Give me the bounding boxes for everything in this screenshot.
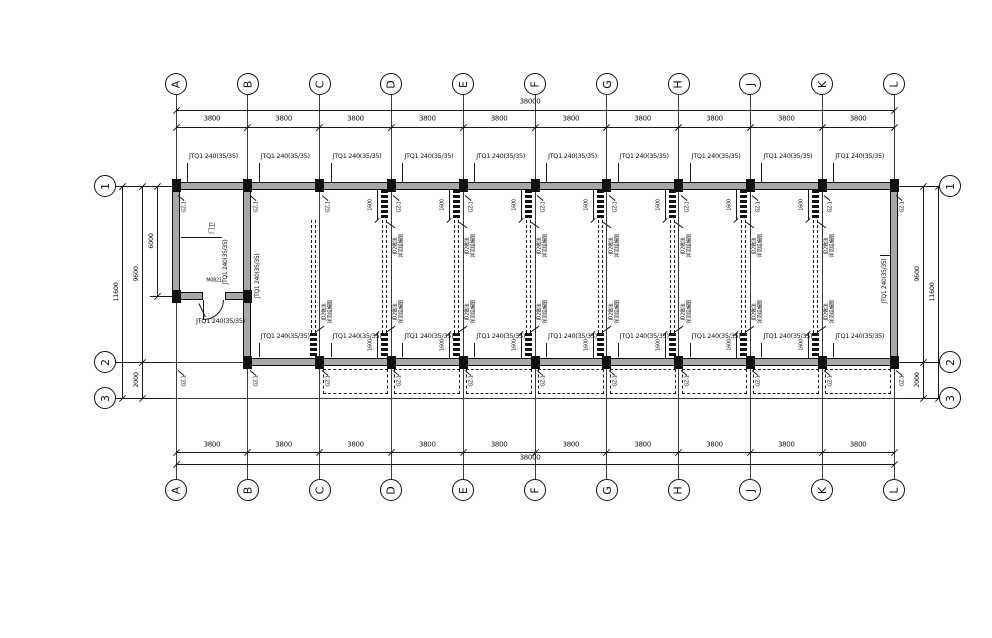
wall-label-top-6: JTQ1 240(35/35)	[620, 153, 669, 160]
bubble-label: C	[313, 80, 326, 88]
grid-line-col-D	[391, 95, 392, 479]
column-B1	[243, 179, 252, 192]
grid-line-col-J	[750, 95, 751, 479]
dim-ext-left-1	[150, 296, 172, 297]
duct-label-2: 详见结施图	[687, 300, 692, 324]
duct-dashed-line	[454, 220, 455, 333]
wall-label-L: JTQ1 240(35/35)	[882, 259, 888, 304]
canopy-outline-FG	[538, 369, 604, 394]
dim-line-top-overall	[176, 110, 894, 111]
column-tag-leader	[537, 195, 544, 201]
bubble-label: F	[528, 81, 541, 87]
dim-ext-right-1	[898, 362, 939, 363]
dim-text-bay-bottom-1: 3800	[275, 442, 292, 449]
wall-right-L	[890, 182, 898, 366]
column-tag: GZ-1	[685, 376, 690, 387]
wall-label-top-3: JTQ1 240(35/35)	[404, 153, 453, 160]
wall-label-top-5: JTQ1 240(35/35)	[548, 153, 597, 160]
column-tag: GZ-1	[542, 376, 547, 387]
wall-label-A: JTQ1 240(35/35)	[223, 240, 229, 285]
dim-line-1600-top	[449, 190, 450, 220]
grid-bubble-top-J: J	[739, 73, 761, 95]
grid-bubble-bottom-F: F	[524, 479, 546, 501]
dim-text-bay-top-5: 3800	[563, 116, 580, 123]
duct-label-2: 详见结施图	[472, 234, 477, 258]
column-tag-leader	[393, 195, 400, 201]
dim-text-1600-bottom: 1600	[584, 339, 589, 351]
column-J1	[746, 179, 755, 192]
wall-label-leader	[618, 163, 619, 182]
column-tag: GZ-1	[183, 376, 188, 387]
wall-label-bottom-5: JTQ1 240(35/35)	[548, 333, 597, 340]
grid-bubble-top-D: D	[380, 73, 402, 95]
duct-band	[310, 333, 317, 358]
dim-text-bay-bottom-6: 3800	[634, 442, 651, 449]
dim-text-1600-top: 1600	[513, 199, 518, 211]
grid-bubble-top-C: C	[309, 73, 331, 95]
grid-bubble-right-1: 1	[939, 175, 961, 197]
dim-text-1600-bottom: 1600	[369, 339, 374, 351]
duct-band	[669, 333, 676, 358]
dim-line-bottom-overall	[176, 464, 894, 465]
column-room-A	[172, 290, 181, 303]
column-D1	[387, 179, 396, 192]
duct-dashed-line	[311, 220, 312, 333]
duct-label-2: 详见结施图	[328, 300, 333, 324]
column-tag: GZ-1	[542, 202, 547, 213]
wall-label-top-2: JTQ1 240(35/35)	[333, 153, 382, 160]
duct-band	[740, 190, 747, 220]
wall-label-leader	[259, 343, 260, 357]
column-J2	[746, 356, 755, 369]
dim-text-9600-left: 9600	[133, 266, 140, 281]
bubble-label: K	[816, 80, 829, 87]
grid-bubble-top-H: H	[668, 73, 690, 95]
wall-label-leader	[402, 343, 403, 357]
wall-label-leader	[474, 163, 475, 182]
wall-label-leader	[402, 163, 403, 182]
wall-label-bottom-7: JTQ1 240(35/35)	[692, 333, 741, 340]
dim-tick	[806, 218, 811, 223]
wall-label-bottom-2: JTQ1 240(35/35)	[333, 333, 382, 340]
wall-label-bottom-9: JTQ1 240(35/35)	[835, 333, 884, 340]
wall-label-top-0: JTQ1 240(35/35)	[189, 153, 238, 160]
wall-label-B: JTQ1 240(35/35)	[255, 254, 261, 299]
column-tag: GZ-1	[613, 376, 618, 387]
dim-text-bay-bottom-5: 3800	[563, 442, 580, 449]
column-tag-leader	[321, 195, 328, 201]
wall-label-leader	[546, 163, 547, 182]
duct-label-2: 详见结施图	[615, 300, 620, 324]
canopy-outline-EF	[466, 369, 532, 394]
column-tag-leader	[752, 195, 759, 201]
bubble-label: G	[600, 486, 613, 495]
column-H1	[674, 179, 683, 192]
column-E2	[459, 356, 468, 369]
dim-text-1600-top: 1600	[584, 199, 589, 211]
duct-label-2: 详见结施图	[400, 234, 405, 258]
bubble-label: 3	[99, 395, 112, 402]
dim-text-1600-top: 1600	[728, 199, 733, 211]
dim-text-2000-right: 2000	[914, 372, 921, 387]
dim-text-1600-bottom: 1600	[656, 339, 661, 351]
duct-label-2: 详见结施图	[400, 300, 405, 324]
duct-label-2: 详见结施图	[687, 234, 692, 258]
dim-text-total-height-left: 11600	[113, 282, 120, 301]
dim-line-1600-top	[593, 190, 594, 220]
grid-bubble-bottom-B: B	[237, 479, 259, 501]
wall-label-leader	[618, 343, 619, 357]
dim-text-bay-bottom-3: 3800	[419, 442, 436, 449]
dim-text-bay-top-3: 3800	[419, 116, 436, 123]
column-G1	[602, 179, 611, 192]
bubble-label: 1	[944, 183, 957, 190]
dim-text-1600-bottom: 1600	[441, 339, 446, 351]
bubble-label: F	[528, 487, 541, 493]
wall-label-top-8: JTQ1 240(35/35)	[763, 153, 812, 160]
bubble-label: H	[672, 486, 685, 494]
duct-label-2: 详见结施图	[615, 234, 620, 258]
duct-dashed-line	[745, 220, 746, 333]
dim-text-1600-bottom: 1600	[800, 339, 805, 351]
duct-dashed-line	[813, 220, 814, 333]
wall-label-top-1: JTQ1 240(35/35)	[261, 153, 310, 160]
bubble-label: D	[385, 486, 398, 494]
duct-dashed-line	[458, 220, 459, 333]
room-label: 门卫	[210, 222, 216, 233]
canopy-outline-GH	[610, 369, 676, 394]
grid-bubble-top-A: A	[165, 73, 187, 95]
duct-label-1: JD2做法	[681, 237, 686, 254]
grid-bubble-top-B: B	[237, 73, 259, 95]
column-L1	[890, 179, 899, 192]
grid-bubble-bottom-G: G	[596, 479, 618, 501]
column-C2	[315, 356, 324, 369]
bubble-label: G	[600, 80, 613, 89]
column-tag-leader	[465, 195, 472, 201]
dim-text-bay-top-9: 3800	[850, 116, 867, 123]
duct-label-2: 详见结施图	[831, 300, 836, 324]
column-tag: GZ-1	[254, 202, 259, 213]
wall-label-leader	[546, 343, 547, 357]
wall-label-leader	[833, 343, 834, 357]
bubble-label: H	[672, 80, 685, 88]
column-tag: GZ-1	[829, 376, 834, 387]
wall-label-leader	[690, 343, 691, 357]
grid-line-col-K	[822, 95, 823, 479]
column-A1	[172, 179, 181, 192]
floor-plan-drawing: 3800380038003800380038003800380038003800…	[0, 0, 992, 638]
grid-bubble-bottom-E: E	[452, 479, 474, 501]
duct-dashed-line	[386, 220, 387, 333]
grid-bubble-bottom-L: L	[883, 479, 905, 501]
column-B2	[243, 356, 252, 369]
bubble-label: L	[887, 81, 900, 87]
duct-band	[597, 190, 604, 220]
bubble-label: 2	[99, 359, 112, 366]
grid-bubble-left-2: 2	[94, 351, 116, 373]
bubble-label: A	[170, 80, 183, 88]
column-K1	[818, 179, 827, 192]
grid-line-col-H	[678, 95, 679, 479]
column-G2	[602, 356, 611, 369]
grid-bubble-bottom-K: K	[811, 479, 833, 501]
dim-ext-right-0	[898, 186, 939, 187]
wall-label-bottom-1: JTQ1 240(35/35)	[261, 333, 310, 340]
grid-bubble-bottom-A: A	[165, 479, 187, 501]
duct-dashed-line	[741, 220, 742, 333]
grid-bubble-top-F: F	[524, 73, 546, 95]
bubble-label: B	[241, 486, 254, 494]
grid-bubble-left-1: 1	[94, 175, 116, 197]
duct-band	[381, 190, 388, 220]
grid-line-col-C	[319, 95, 320, 479]
duct-label-2: 详见结施图	[759, 300, 764, 324]
dim-tick	[375, 218, 380, 223]
dim-tick	[662, 218, 667, 223]
duct-label-2: 详见结施图	[759, 234, 764, 258]
dim-text-bay-top-7: 3800	[706, 116, 723, 123]
dim-line-left-total	[122, 186, 123, 398]
dim-text-bay-bottom-8: 3800	[778, 442, 795, 449]
wall-label-leader	[181, 237, 222, 238]
duct-dashed-line	[670, 220, 671, 333]
canopy-outline-HJ	[682, 369, 748, 394]
column-tag: GZ-1	[613, 202, 618, 213]
dim-text-1600-bottom: 1600	[728, 339, 733, 351]
column-tag: GZ-1	[829, 202, 834, 213]
dim-text-total-top: 38000	[520, 99, 541, 106]
dim-tick	[519, 218, 524, 223]
duct-dashed-line	[817, 220, 818, 333]
grid-line-col-F	[535, 95, 536, 479]
grid-bubble-right-2: 2	[939, 351, 961, 373]
dim-line-left-chain	[142, 186, 143, 398]
duct-dashed-line	[674, 220, 675, 333]
dim-line-1600-top	[736, 190, 737, 220]
column-tag-leader	[680, 195, 687, 201]
wall-label-top-4: JTQ1 240(35/35)	[476, 153, 525, 160]
duct-band	[453, 333, 460, 358]
canopy-outline-JK	[753, 369, 819, 394]
column-tag: GZ-1	[685, 202, 690, 213]
wall-label-leader	[474, 343, 475, 357]
grid-bubble-left-3: 3	[94, 387, 116, 409]
column-F1	[531, 179, 540, 192]
grid-bubble-right-3: 3	[939, 387, 961, 409]
column-tag: GZ-1	[398, 376, 403, 387]
dim-text-bay-top-1: 3800	[275, 116, 292, 123]
bubble-label: J	[744, 82, 757, 85]
column-tag: GZ-1	[470, 376, 475, 387]
bubble-label: E	[457, 487, 470, 494]
dim-text-1600-top: 1600	[656, 199, 661, 211]
duct-band	[453, 190, 460, 220]
dim-line-1600-top	[521, 190, 522, 220]
wall-label-room-bottom: JTQ1 240(35/35)	[196, 318, 245, 325]
bubble-label: 2	[944, 359, 957, 366]
duct-band	[812, 190, 819, 220]
duct-band	[812, 333, 819, 358]
column-H2	[674, 356, 683, 369]
wall-label-leader	[761, 163, 762, 182]
grid-bubble-top-L: L	[883, 73, 905, 95]
grid-bubble-top-K: K	[811, 73, 833, 95]
dim-text-bay-bottom-4: 3800	[491, 442, 508, 449]
bubble-label: E	[457, 81, 470, 88]
bubble-label: 3	[944, 395, 957, 402]
grid-bubble-top-E: E	[452, 73, 474, 95]
dim-text-bay-top-2: 3800	[347, 116, 364, 123]
dim-text-bay-bottom-0: 3800	[204, 442, 221, 449]
duct-band	[525, 190, 532, 220]
duct-dashed-line	[315, 220, 316, 333]
wall-label-bottom-3: JTQ1 240(35/35)	[404, 333, 453, 340]
column-tag-leader	[608, 195, 615, 201]
dim-text-bay-top-6: 3800	[634, 116, 651, 123]
column-E1	[459, 179, 468, 192]
column-tag: GZ-1	[183, 202, 188, 213]
duct-band	[740, 333, 747, 358]
wall-left-A	[172, 182, 180, 300]
dim-tick	[734, 218, 739, 223]
bubble-label: K	[816, 486, 829, 493]
wall-label-leader	[761, 343, 762, 357]
wall-label-leader	[833, 163, 834, 182]
column-tag: GZ-1	[326, 202, 331, 213]
canopy-outline-KL	[825, 369, 891, 394]
duct-label-2: 详见结施图	[544, 300, 549, 324]
column-tag: GZ-1	[470, 202, 475, 213]
wall-label-top-9: JTQ1 240(35/35)	[835, 153, 884, 160]
dim-text-bay-top-4: 3800	[491, 116, 508, 123]
dim-ext-right-2	[898, 398, 939, 399]
wall-label-bottom-6: JTQ1 240(35/35)	[620, 333, 669, 340]
dim-line-left-room	[157, 186, 158, 296]
wall-label-leader	[880, 255, 890, 256]
bubble-label: J	[744, 488, 757, 491]
dim-text-1600-bottom: 1600	[513, 339, 518, 351]
duct-dashed-line	[382, 220, 383, 333]
dim-text-bay-bottom-7: 3800	[706, 442, 723, 449]
grid-bubble-bottom-D: D	[380, 479, 402, 501]
dim-text-1600-top: 1600	[441, 199, 446, 211]
wall-label-leader	[331, 343, 332, 357]
wall-label-top-7: JTQ1 240(35/35)	[692, 153, 741, 160]
duct-dashed-line	[526, 220, 527, 333]
grid-line-col-G	[606, 95, 607, 479]
duct-band	[525, 333, 532, 358]
wall-label-bottom-8: JTQ1 240(35/35)	[763, 333, 812, 340]
duct-band	[669, 190, 676, 220]
dim-tick	[447, 218, 452, 223]
duct-label-1: JD2做法	[681, 303, 686, 320]
duct-dashed-line	[530, 220, 531, 333]
dim-text-1600-top: 1600	[800, 199, 805, 211]
bubble-label: B	[241, 80, 254, 88]
dim-text-bay-bottom-2: 3800	[347, 442, 364, 449]
column-tag: GZ-1	[901, 376, 906, 387]
dim-line-1600-top	[377, 190, 378, 220]
column-tag-leader	[824, 195, 831, 201]
grid-bubble-top-G: G	[596, 73, 618, 95]
dim-text-9600-right: 9600	[914, 266, 921, 281]
column-tag: GZ-1	[398, 202, 403, 213]
bubble-label: 1	[99, 183, 112, 190]
wall-B	[243, 182, 251, 366]
dim-text-1600-top: 1600	[369, 199, 374, 211]
grid-bubble-bottom-C: C	[309, 479, 331, 501]
duct-label-2: 详见结施图	[831, 234, 836, 258]
column-L2	[890, 356, 899, 369]
wall-label-leader	[690, 163, 691, 182]
duct-label-1: JD2做法	[322, 303, 327, 320]
column-K2	[818, 356, 827, 369]
column-tag: GZ-1	[757, 376, 762, 387]
dim-line-right-chain	[923, 186, 924, 398]
grid-bubble-bottom-J: J	[739, 479, 761, 501]
grid-bubble-bottom-H: H	[668, 479, 690, 501]
door-label: M0821	[206, 279, 222, 284]
canopy-outline-CD	[323, 369, 389, 394]
duct-dashed-line	[602, 220, 603, 333]
duct-band	[597, 333, 604, 358]
dim-line-1600-top	[808, 190, 809, 220]
column-C1	[315, 179, 324, 192]
column-tag: GZ-1	[901, 202, 906, 213]
duct-dashed-line	[598, 220, 599, 333]
grid-line-col-E	[463, 95, 464, 479]
canopy-outline-DE	[394, 369, 460, 394]
column-tag: GZ-1	[757, 202, 762, 213]
dim-text-total-height-right: 11600	[929, 282, 936, 301]
duct-label-2: 详见结施图	[544, 234, 549, 258]
wall-label-bottom-4: JTQ1 240(35/35)	[476, 333, 525, 340]
column-tag: GZ-1	[326, 376, 331, 387]
dim-line-1600-top	[665, 190, 666, 220]
wall-label-leader	[259, 163, 260, 182]
dim-text-6000: 6000	[148, 233, 155, 248]
bubble-label: D	[385, 80, 398, 88]
column-tag: GZ-1	[254, 376, 259, 387]
column-room-B	[243, 290, 252, 303]
column-F2	[531, 356, 540, 369]
dim-tick	[590, 218, 595, 223]
dim-text-bay-top-0: 3800	[204, 116, 221, 123]
dim-text-total-bottom: 38000	[520, 455, 541, 462]
wall-label-leader	[331, 163, 332, 182]
grid-line-row-3	[116, 398, 939, 399]
dim-text-2000-left: 2000	[133, 372, 140, 387]
column-D2	[387, 356, 396, 369]
bubble-label: A	[170, 486, 183, 494]
dim-text-bay-top-8: 3800	[778, 116, 795, 123]
duct-label-2: 详见结施图	[472, 300, 477, 324]
wall-bottom	[243, 358, 898, 366]
wall-label-leader	[187, 163, 188, 182]
dim-text-bay-bottom-9: 3800	[850, 442, 867, 449]
bubble-label: L	[887, 487, 900, 493]
bubble-label: C	[313, 486, 326, 494]
duct-band	[381, 333, 388, 358]
